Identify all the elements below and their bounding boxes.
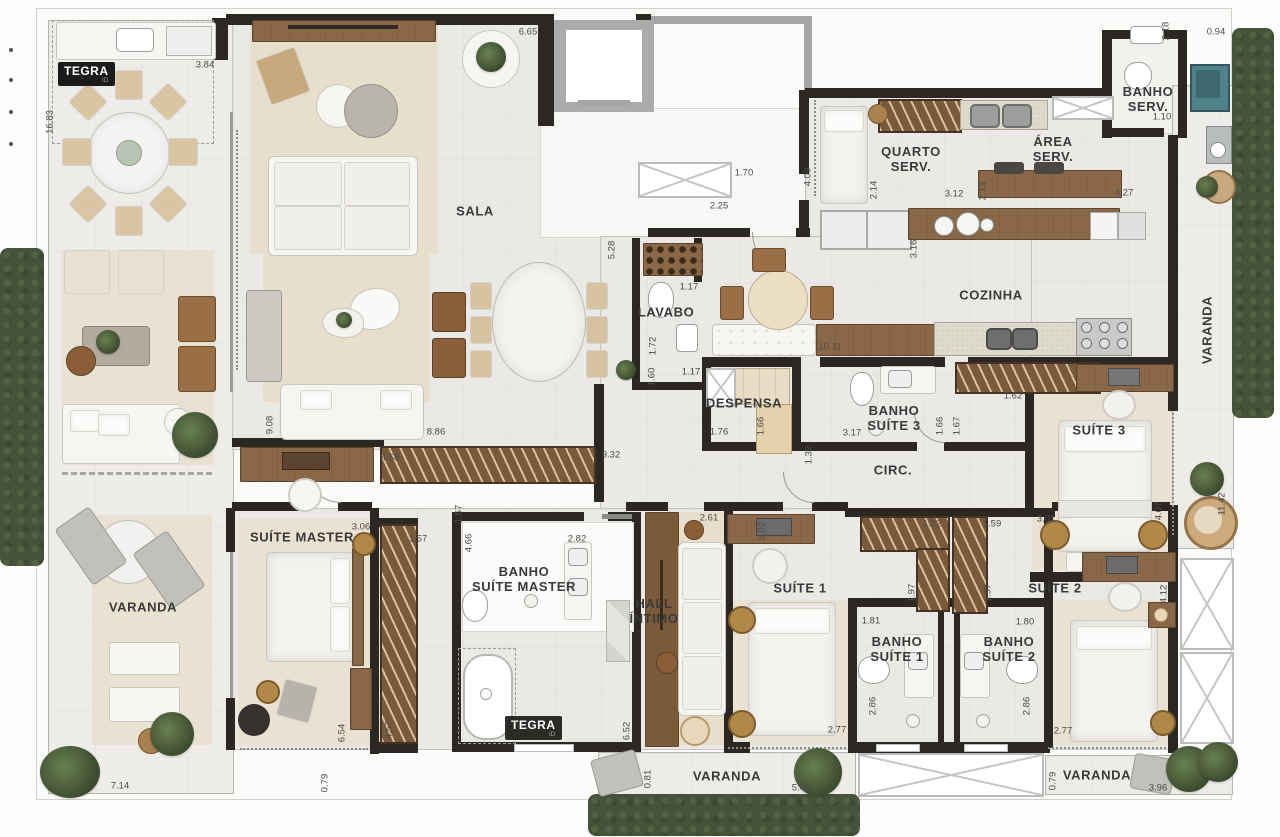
- room-label-despensa: DESPENSA: [706, 397, 782, 412]
- sofa-cushion: [344, 206, 410, 250]
- wall: [226, 698, 235, 750]
- dimension-label: 1.66: [756, 417, 767, 436]
- room-label-hall-intimo: HALL ÍNTIMO: [629, 597, 678, 627]
- chair: [115, 206, 143, 236]
- window: [876, 744, 920, 752]
- room-label-banho-suite-1: BANHO SUÍTE 1: [870, 635, 923, 665]
- room-label-quarto-serv: QUARTO SERV.: [881, 145, 941, 175]
- dimension-label: 1.59: [983, 519, 1002, 530]
- tv: [288, 25, 398, 29]
- chair: [168, 138, 198, 166]
- room-label-area-serv: ÁREA SERV.: [1033, 135, 1074, 165]
- chair: [470, 282, 492, 310]
- nightstand: [1150, 710, 1176, 736]
- closet-suite-1: [916, 548, 950, 612]
- desk-drawer: [282, 452, 330, 470]
- side-table: [868, 104, 888, 124]
- neighbor-area: [858, 753, 1044, 797]
- brand-sub: ID: [64, 78, 109, 85]
- room-label-varanda-bottom-right: VARANDA: [1063, 769, 1131, 784]
- floor-plan-canvas: TEGRA ID TEGRA ID SALALAVABOCOZINHAQUART…: [0, 0, 1280, 837]
- dimension-label: 4.12: [1159, 585, 1170, 604]
- freezer: [866, 210, 912, 250]
- wood-armchair: [432, 292, 466, 332]
- dimension-label: 1.80: [1016, 617, 1035, 628]
- room-label-sala: SALA: [456, 205, 494, 220]
- wardrobe-quarto-serv: [878, 99, 962, 133]
- wall: [938, 598, 944, 748]
- wall: [226, 508, 235, 552]
- neighbor-area: [1180, 558, 1234, 650]
- dimension-label: 1.76: [710, 427, 729, 438]
- dimension-label: 11.42: [1217, 492, 1228, 515]
- dimension-label: 1.62: [1004, 391, 1023, 402]
- edge-marker: [9, 110, 13, 114]
- wall: [1102, 30, 1112, 138]
- chair: [720, 286, 744, 320]
- zigzag-rug: [62, 472, 212, 475]
- floor-lamp: [680, 716, 710, 746]
- monitor: [1106, 556, 1138, 574]
- dimension-label: 2.14: [869, 181, 880, 200]
- sofa-cushion: [682, 602, 722, 654]
- sliding-door: [602, 514, 632, 519]
- sink: [1130, 26, 1164, 44]
- tv-console: [252, 20, 436, 42]
- sofa-cushion: [344, 162, 410, 206]
- elevator-car: [566, 30, 642, 102]
- dimension-label: 2.77: [828, 725, 847, 736]
- appliance: [1090, 212, 1118, 240]
- room-label-varanda-right: VARANDA: [1201, 296, 1216, 364]
- edge-marker: [9, 78, 13, 82]
- kitchen-sink: [986, 328, 1012, 350]
- plant-icon: [476, 42, 506, 72]
- wall: [1178, 30, 1187, 138]
- nightstand: [728, 710, 756, 738]
- burner-icon: [1117, 338, 1128, 349]
- wall: [944, 442, 1034, 451]
- dimension-label: 2.82: [568, 534, 587, 545]
- headboard: [352, 548, 364, 666]
- wine-cabinet: [643, 243, 703, 276]
- wall: [594, 384, 604, 502]
- dimension-label: 3.84: [196, 60, 215, 71]
- pillow: [98, 414, 130, 436]
- dimension-label: 3.06: [352, 522, 371, 533]
- dimension-label: 5.02: [757, 522, 768, 541]
- wardrobe-corridor: [380, 446, 596, 484]
- wall: [792, 357, 801, 449]
- dimension-label: 8.86: [427, 427, 446, 438]
- dimension-label: 2.86: [1022, 697, 1033, 716]
- sofa-cushion: [682, 548, 722, 600]
- desk-chair: [1108, 582, 1142, 612]
- laundry-sink: [1002, 104, 1032, 128]
- lobby-bench: [638, 162, 732, 198]
- dimension-label: 10.11: [818, 342, 841, 353]
- bed-throw: [1058, 500, 1152, 518]
- dimension-label: 9.32: [602, 450, 621, 461]
- room-label-varanda-left: VARANDA: [109, 601, 177, 616]
- dimension-label: 4.09: [803, 168, 814, 187]
- dimension-label: 2.61: [700, 513, 719, 524]
- basin: [964, 652, 984, 670]
- dimension-label: 1.72: [648, 337, 659, 356]
- dimension-label: 1.10: [1153, 112, 1172, 123]
- wood-armchair: [432, 338, 466, 378]
- shower-drain-icon: [524, 594, 538, 608]
- tub-drain-icon: [480, 688, 492, 700]
- dimension-label: 5.28: [607, 241, 618, 260]
- dimension-label: 16.83: [45, 110, 56, 134]
- laundry-tank-basin: [1196, 70, 1220, 98]
- centerpiece: [116, 140, 142, 166]
- monitor: [1108, 368, 1140, 386]
- chair: [752, 248, 786, 272]
- basin: [888, 370, 912, 388]
- armchair: [118, 250, 164, 294]
- pillow: [1076, 626, 1152, 650]
- laundry-sink: [970, 104, 1000, 128]
- dimension-label: 3.12: [945, 189, 964, 200]
- wood-armchair: [178, 346, 216, 392]
- dimension-label: 1.32: [804, 446, 815, 465]
- side-table: [656, 652, 678, 674]
- chair: [115, 70, 143, 100]
- curtain-icon: [236, 130, 238, 370]
- elevator-door: [578, 100, 630, 106]
- wall: [848, 598, 857, 748]
- chair: [586, 282, 608, 310]
- dimension-label: 4.07: [1154, 502, 1165, 521]
- wall: [452, 512, 584, 521]
- wall-lobby: [804, 16, 812, 90]
- plant-icon: [336, 312, 352, 328]
- dimension-label: 0.79: [320, 774, 331, 793]
- shower-niche: [606, 600, 630, 662]
- room-label-banho-serv: BANHO SERV.: [1123, 85, 1174, 115]
- sun-lounger: [109, 642, 180, 675]
- dimension-label: 3.96: [1149, 783, 1168, 794]
- dimension-label: 0.79: [1048, 772, 1059, 791]
- room-label-banho-suite-master: BANHO SUÍTE MASTER: [472, 565, 576, 595]
- dimension-label: 2.25: [710, 201, 729, 212]
- dimension-label: 1.17: [682, 367, 701, 378]
- dimension-label: 4.66: [464, 534, 475, 553]
- brand-logo-watermark: TEGRA ID: [505, 716, 562, 740]
- dimension-label: 4.58: [381, 453, 400, 464]
- chair: [810, 286, 834, 320]
- desk-stool: [288, 478, 322, 512]
- wall: [725, 502, 783, 511]
- desk-chair: [1102, 390, 1136, 420]
- appliance: [1118, 212, 1146, 240]
- basket: [994, 162, 1024, 174]
- dimension-label: 2.13: [978, 182, 989, 201]
- wall: [702, 357, 799, 367]
- room-label-suite-1: SUÍTE 1: [773, 582, 826, 597]
- wall: [626, 502, 668, 511]
- dimension-label: 6.54: [337, 724, 348, 743]
- wardrobe-suite-master: [380, 524, 418, 744]
- curtain-icon: [1172, 413, 1174, 535]
- pet-bowl: [1210, 142, 1226, 158]
- side-table: [256, 680, 280, 704]
- brand-name: TEGRA: [64, 65, 109, 77]
- dimension-label: 3.01: [1037, 514, 1056, 525]
- service-table: [978, 170, 1122, 198]
- room-label-lavabo: LAVABO: [638, 306, 695, 321]
- wall: [1168, 135, 1178, 367]
- chaise: [246, 290, 282, 382]
- bowl: [956, 212, 980, 236]
- pillow: [754, 608, 830, 634]
- pillow: [330, 558, 350, 604]
- room-label-banho-suite-3: BANHO SUÍTE 3: [867, 404, 920, 434]
- dimension-label: 4.57: [384, 721, 395, 740]
- shower-drain-icon: [976, 714, 990, 728]
- curtain-icon: [240, 748, 368, 750]
- desk-chair: [752, 548, 788, 584]
- grill-module: [166, 26, 212, 56]
- hedge-left: [0, 248, 44, 566]
- wall: [1102, 128, 1164, 137]
- dimension-label: 1.67: [952, 417, 963, 436]
- brand-logo: TEGRA ID: [58, 62, 115, 86]
- plant-icon: [1198, 742, 1238, 782]
- wall: [632, 382, 704, 390]
- wall: [648, 228, 750, 237]
- kitchen-sink: [1012, 328, 1038, 350]
- pouf: [344, 84, 398, 138]
- room-label-banho-suite-2: BANHO SUÍTE 2: [982, 635, 1035, 665]
- bench-tufted: [712, 324, 816, 356]
- burner-icon: [1081, 322, 1092, 333]
- pillow: [300, 390, 332, 410]
- bench: [350, 668, 372, 730]
- pillow: [380, 390, 412, 410]
- wood-armchair: [178, 296, 216, 342]
- wall: [704, 502, 726, 511]
- wall: [338, 502, 372, 511]
- curtain-icon: [814, 100, 816, 196]
- armchair: [64, 250, 110, 294]
- pouf-dark: [238, 704, 270, 736]
- nightstand: [1138, 520, 1168, 550]
- toilet: [850, 372, 874, 406]
- basin: [568, 548, 588, 566]
- dimension-label: 1.70: [735, 168, 754, 179]
- dimension-label: 4.27: [1115, 188, 1134, 199]
- dimension-label: 2.77: [1054, 726, 1073, 737]
- plant-icon: [616, 360, 636, 380]
- wall: [812, 502, 848, 511]
- nightstand: [728, 606, 756, 634]
- chair: [586, 350, 608, 378]
- glass-suite-master: [230, 552, 233, 698]
- wall: [799, 90, 809, 174]
- neighbor-area: [1180, 652, 1234, 744]
- dimension-label: 6.65: [519, 27, 538, 38]
- dimension-label: 3.17: [843, 428, 862, 439]
- dimension-label: 1.81: [862, 616, 881, 627]
- plant-icon: [40, 746, 100, 798]
- breakfast-table: [748, 270, 808, 330]
- dimension-label: 7.14: [111, 781, 130, 792]
- plant-icon: [1190, 462, 1224, 496]
- counter-sink: [116, 28, 154, 52]
- dimension-label: 2.18: [1161, 22, 1172, 41]
- glass-sala: [230, 112, 233, 392]
- dimension-label: 1.97: [983, 584, 994, 603]
- cabinet: [1052, 96, 1114, 120]
- dimension-label: 1.82: [923, 519, 942, 530]
- dimension-label: 1.57: [409, 534, 428, 545]
- dimension-label: 1.17: [680, 282, 699, 293]
- burner-icon: [1099, 338, 1110, 349]
- chair: [470, 350, 492, 378]
- dimension-label: 0.81: [643, 770, 654, 789]
- fridge: [820, 210, 868, 250]
- pillow: [330, 606, 350, 652]
- shower-drain-icon: [906, 714, 920, 728]
- curtain-icon: [1048, 747, 1166, 749]
- room-label-suite-2: SUÍTE 2: [1028, 582, 1081, 597]
- room-label-suite-master: SUÍTE MASTER: [250, 531, 354, 546]
- plant-icon: [96, 330, 120, 354]
- wood-bowl: [66, 346, 96, 376]
- dimension-label: 5.49: [792, 783, 811, 794]
- plant-icon: [1196, 176, 1218, 198]
- brand-sub: ID: [511, 732, 556, 739]
- wall: [796, 228, 810, 237]
- edge-marker: [9, 48, 13, 52]
- chair: [470, 316, 492, 344]
- chair: [62, 138, 92, 166]
- sofa-cushion: [274, 206, 342, 250]
- plant-icon: [172, 412, 218, 458]
- lamp: [1154, 608, 1168, 622]
- wall-lobby: [651, 16, 809, 24]
- dimension-label: 9.08: [265, 416, 276, 435]
- hedge-bottom: [588, 794, 860, 836]
- dimension-label: 1.97: [907, 584, 918, 603]
- room-label-cozinha: COZINHA: [959, 289, 1022, 304]
- dimension-label: 1.60: [647, 368, 658, 387]
- brand-name: TEGRA: [511, 719, 556, 731]
- room-label-varanda-bottom: VARANDA: [693, 770, 761, 785]
- dimension-label: 2.86: [868, 697, 879, 716]
- bowl: [980, 218, 994, 232]
- plant-icon: [150, 712, 194, 756]
- edge-marker: [9, 142, 13, 146]
- pillow: [824, 110, 864, 132]
- dimension-label: 3.16: [909, 240, 920, 259]
- lavabo-sink: [676, 324, 698, 352]
- burner-icon: [1117, 322, 1128, 333]
- burner-icon: [1099, 322, 1110, 333]
- curtain-icon: [728, 747, 846, 749]
- chair: [586, 316, 608, 344]
- sofa-cushion: [274, 162, 342, 206]
- bowl: [934, 216, 954, 236]
- room-label-circ: CIRC.: [874, 464, 912, 479]
- dining-table-oval: [492, 262, 586, 382]
- burner-icon: [1081, 338, 1092, 349]
- nightstand: [1040, 520, 1070, 550]
- hedge-right: [1232, 28, 1274, 418]
- sofa-cushion: [682, 656, 722, 710]
- window: [514, 744, 574, 752]
- wall: [538, 14, 554, 126]
- room-label-suite-3: SUÍTE 3: [1072, 424, 1125, 439]
- dimension-label: 0.94: [1207, 27, 1226, 38]
- dimension-label: 1.67: [454, 505, 465, 524]
- window: [964, 744, 1008, 752]
- pillow: [70, 410, 100, 432]
- dimension-label: 6.52: [622, 722, 633, 741]
- dimension-label: 1.66: [935, 417, 946, 436]
- nightstand: [352, 532, 376, 556]
